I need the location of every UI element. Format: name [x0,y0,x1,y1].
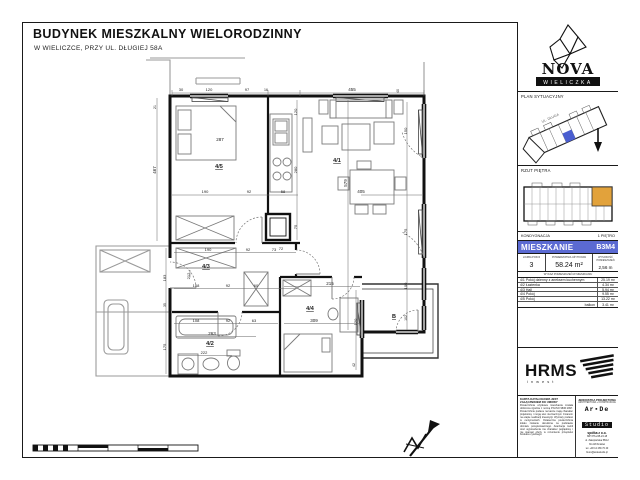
dimension-label: 579 [343,179,348,187]
dimension-label: 58 [281,189,286,194]
dining-table [350,170,394,204]
site-plan-box: PLAN SYTUACYJNY UL. DŁUGA [518,92,618,166]
dimension-label: 100 [403,282,408,289]
dimension-label: 183 [162,274,167,281]
catalog-sheet: BUDYNEK MIESZKALNY WIELORODZINNY W WIELI… [0,0,640,480]
dimension-label: 190 [202,189,209,194]
apartment-row: MIESZKANIE B3M4 [518,241,618,254]
balcony-label: balkon [518,302,597,307]
balcony-area: 3.41 m² [597,302,618,307]
dimension-label: 309 [310,318,318,323]
site-plan-label: PLAN SYTUACYJNY [521,94,564,99]
summary-row: LICZBA POKOI 3 POWIERZCHNIA UŻYTKOWA 58.… [518,254,618,272]
dimension-label: 263 [208,331,216,336]
dimension-label: 21 [153,105,157,109]
dimension-label: 280 [293,166,298,173]
room-name: 4/5 Pokój [518,297,597,301]
room-label: 4/4 [306,306,315,312]
dimension-label: 287 [216,137,224,142]
height-value: 2,56 m [598,262,612,273]
dimension-label: 108 [193,283,200,288]
contractor-logo-box: HRMS inwest [518,348,618,396]
bed-4-5 [176,106,236,160]
scale-bar [33,445,198,451]
design-office-name2: Studio [582,422,612,428]
dimension-label: 42 [352,363,356,367]
room-area: 5.94 m² [597,288,618,292]
room-label: 4/5 [215,164,223,170]
dimension-label: 35 [163,303,167,307]
floor-overview-box: RZUT PIĘTRA [518,166,618,232]
dimension-label: 212 [186,272,191,279]
dimension-label: 120 [206,87,213,92]
neighbour-walls [96,58,424,376]
dimension-label: 72 [279,246,284,251]
balcony-outline [362,284,438,358]
legal-disclaimer: KARTA KATALOGOWA JEST ZAŁĄCZNIKIEM DO UM… [518,396,576,458]
washbasin [203,358,219,370]
shaft [266,214,290,240]
room-name: 4/3 Hall [518,288,597,292]
rooms-count-value: 3 [530,261,534,271]
room-name: 4/2 Łazienka [518,283,597,287]
dimension-label: 92 [226,318,231,323]
floor-row: KONDYGNACJA 1 PIĘTRO [518,232,618,241]
dimension-label: 63 [252,318,257,323]
dimension-label: 97 [245,87,250,92]
height-header: WYSOKOŚĆ POMIESZCZEŃ [593,254,618,262]
developer-logo-box: NOVA WIELICZKA [518,22,618,92]
dimension-label: 455 [348,87,356,92]
sidebar-spacer [518,308,618,348]
hrms-name: HRMS [525,361,577,380]
floor-overview-map [518,175,617,230]
area-value: 58.24 m² [555,261,583,271]
dimension-label: 467 [152,166,157,174]
dimension-label: 60 [254,283,259,288]
dimension-label: 120 [353,318,358,325]
room-name: 4/4 Pokój [518,292,597,296]
floor-value: 1 PIĘTRO [598,234,615,238]
dimension-label: 215 [326,281,334,286]
bed-4-4 [284,334,332,372]
apartment-label: MIESZKANIE [521,243,573,252]
room-label: B [392,314,396,320]
sidebar: NOVA WIELICZKA PLAN SYTUACYJNY UL. D [517,22,618,457]
logo-sub: WIELICZKA [543,80,592,86]
hrms-logo: HRMS inwest [518,348,617,394]
room-area: 9.55 m² [597,292,618,296]
windows [190,96,424,338]
apartment-code: B3M4 [596,244,615,251]
dimension-label: 175 [162,343,167,350]
nova-crystal-icon: NOVA WIELICZKA [518,22,617,91]
dimension-label: 92 [247,189,252,194]
dimension-label: 102 [404,315,408,321]
dimension-label: 190 [205,247,212,252]
design-office-email: biuro@ardestudio.pl [577,452,617,455]
dimension-label: 40 [396,89,400,93]
wall-openings [170,258,418,338]
street-label: UL. DŁUGA [541,112,560,123]
armchair [374,122,394,144]
washing-machine [178,354,198,374]
legal-body: Powierzchnia użytkowa mieszkania została… [520,405,573,437]
dimension-label: 150 [403,127,408,134]
room-label: 4/1 [333,158,341,164]
flag-icon [580,354,617,380]
room-label: 4/3 [202,264,210,270]
room-name: 4/1 Pokój dzienny z aneksem kuchennym [518,278,597,282]
room-label: 4/2 [206,341,214,347]
site-plan-map: UL. DŁUGA [518,100,617,164]
area-cell: POWIERZCHNIA UŻYTKOWA 58.24 m² [546,254,593,271]
design-office-scope: ARCHITEKTURA + KONSTRUKCJE [577,402,617,404]
dimension-label: 16 [264,88,268,92]
room-area: 25.19 m² [597,278,618,282]
site-north-arrow-icon [594,128,602,152]
coffee-table [342,124,370,150]
apartment-info-table: KONDYGNACJA 1 PIĘTRO MIESZKANIE B3M4 LIC… [518,232,618,308]
dimension-label: 405 [357,189,365,194]
desk [340,298,358,332]
dimension-label: 73 [272,247,277,252]
dimension-label: 92 [226,283,231,288]
hrms-sub: inwest [527,379,556,384]
rooms-count-cell: LICZBA POKOI 3 [518,254,546,271]
rooms-count-header: LICZBA POKOI [523,254,540,261]
dimension-label: 75 [293,224,298,229]
dimension-label: 175 [403,228,408,235]
highlighted-unit-floor [592,187,612,206]
dimension-label: 108 [193,318,200,323]
height-cell: WYSOKOŚĆ POMIESZCZEŃ 2,56 m [593,254,618,271]
dimension-label: 222 [201,350,208,355]
area-header: POWIERZCHNIA UŻYTKOWA [552,254,586,261]
room-area: 13.22 m² [597,297,618,301]
dimension-label: 92 [246,247,251,252]
floor-label: KONDYGNACJA [521,234,550,238]
legal-area: KARTA KATALOGOWA JEST ZAŁĄCZNIKIEM DO UM… [518,396,618,458]
design-office-name: Ar▪De [577,406,617,413]
design-office: JEDNOSTKA PROJEKTOWA ARCHITEKTURA + KONS… [576,396,618,458]
logo-name: NOVA [542,60,595,78]
tv-stand [303,118,312,152]
sofa [330,100,392,118]
dimension-label: 120 [293,108,298,115]
room-area: 4.34 m² [597,283,618,287]
north-arrow-icon [404,420,440,456]
floor-overview-label: RZUT PIĘTRA [521,168,551,173]
toilet [227,350,240,356]
dimension-label: 30 [179,87,184,92]
